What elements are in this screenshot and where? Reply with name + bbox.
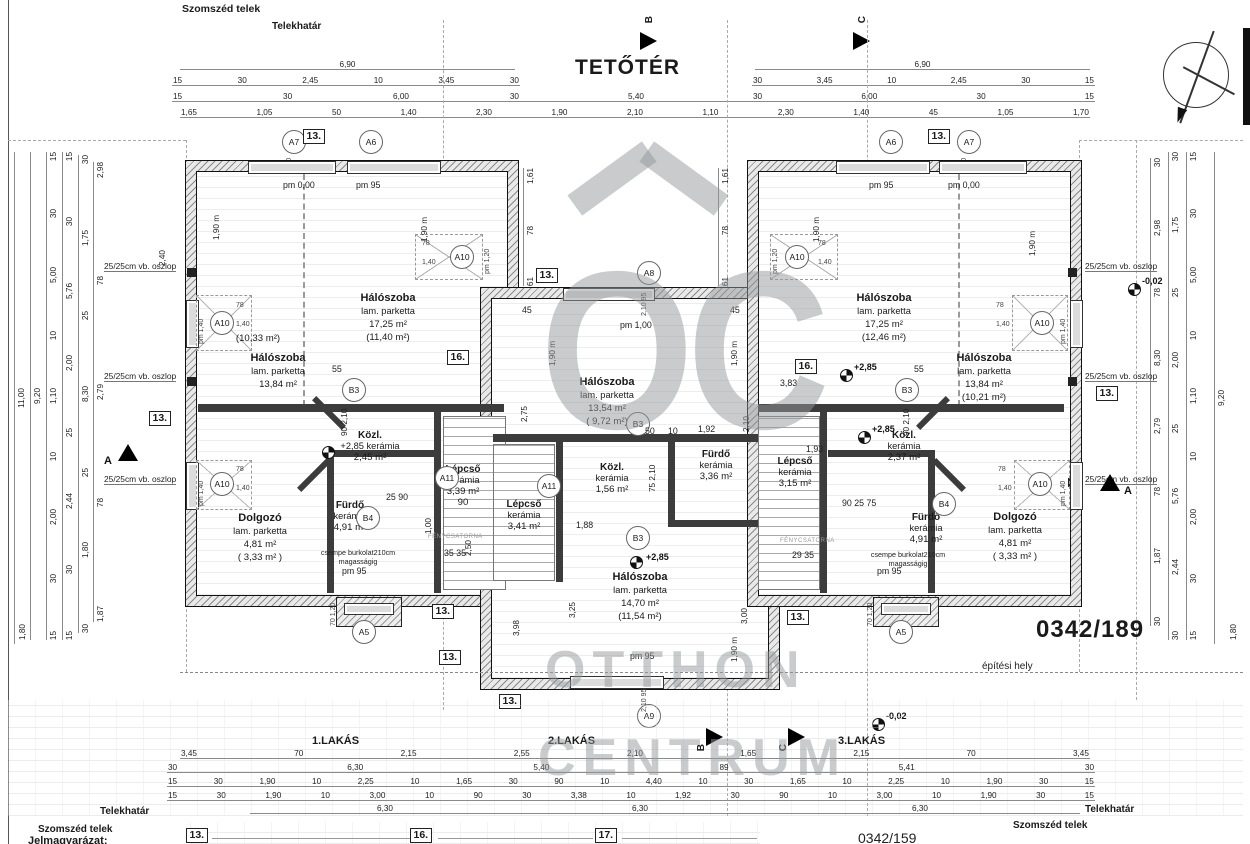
marker-b4: B4 <box>932 492 956 516</box>
plot-number-main: 0342/189 <box>1036 616 1144 644</box>
roof-window-size: 781,40 <box>422 240 436 266</box>
level-minus002: -0,02 <box>1142 276 1163 286</box>
marker-16: 16. <box>410 828 432 843</box>
marker-13: 13. <box>787 610 809 625</box>
dim-top-row2-right: 303,45102,453015 <box>752 74 1095 86</box>
plot-boundary-label-bottom-right: Telekhatár <box>1085 804 1134 815</box>
dim: 1,00 <box>424 498 433 534</box>
dim-left-5: 301,75258,30251,8030 <box>78 155 92 633</box>
right-edge-bar <box>1243 28 1250 125</box>
note-oszlop: 25/25cm vb. oszlop <box>104 474 176 485</box>
marker-13: 13. <box>1096 386 1118 401</box>
marker-a10: A10 <box>1028 472 1052 496</box>
marker-a5: A5 <box>352 620 376 644</box>
note-oszlop: 25/25cm vb. oszlop <box>104 371 176 382</box>
level-285: +2,85 <box>872 424 895 434</box>
marker-13: 13. <box>432 604 454 619</box>
room-l-halo2: Hálószoba lam. parketta 17,25 m² (11,40 … <box>348 292 428 344</box>
note-oszlop: 25/25cm vb. oszlop <box>104 261 176 272</box>
dim-top-row3-center: 5,40 <box>520 90 752 102</box>
dim-left-6: 2,98782,79781,87 <box>93 162 107 622</box>
level-285: +2,85 <box>646 552 669 562</box>
pm-95: pm 95 <box>877 566 901 576</box>
marker-line <box>212 838 410 839</box>
marker-17: 17. <box>595 828 617 843</box>
height-190: 1,90 m <box>1028 206 1037 256</box>
section-a-arrow-icon <box>1100 474 1120 491</box>
compass-arrowhead-icon <box>1173 107 1188 125</box>
height-190: 1,90 m <box>420 192 429 242</box>
neighbor-plot-label-bottom-left: Szomszéd telek <box>38 824 112 835</box>
marker-a11: A11 <box>537 474 561 498</box>
pillar <box>187 268 196 277</box>
dim-a5-pair: 70 1,20 <box>330 596 337 626</box>
marker-a10: A10 <box>450 245 474 269</box>
dim-bottom-row4: 15301,90103,001090303,38101,923090103,00… <box>167 789 1095 801</box>
dim-left-total: 11,00 <box>14 152 28 644</box>
dim: 3,98 <box>512 580 521 636</box>
level-285: +2,85 <box>854 362 877 372</box>
neighbor-plot-label-bottom-right: Szomszéd telek <box>1013 820 1087 831</box>
plot-number-lower: 0342/159 <box>858 830 916 844</box>
marker-line <box>438 838 593 839</box>
dim-top-row1-right: 6,90 <box>755 58 1090 70</box>
section-b-arrow-icon <box>640 32 657 50</box>
pm-140: pm 1,40 <box>198 300 205 344</box>
dim-right-total: 9,20 <box>1214 152 1228 644</box>
partition-wall <box>668 520 768 527</box>
level-symbol <box>858 431 871 444</box>
building-site-label: építési hely <box>982 661 1033 672</box>
dim-top-row1-left: 6,90 <box>180 58 515 70</box>
window <box>1070 300 1083 348</box>
room-r-halo1: Hálószoba lam. parketta 17,25 m² (12,46 … <box>844 292 924 344</box>
marker-13: 13. <box>439 650 461 665</box>
marker-13: 13. <box>149 411 171 426</box>
window <box>939 161 1027 174</box>
window <box>344 603 394 615</box>
neighbor-plot-label-top: Szomszéd telek <box>182 3 260 15</box>
watermark-otthon: OTTHON <box>545 640 807 700</box>
floor-plan-drawing: Szomszéd telek Telekhatár TETŐTÉR 6,90 6… <box>0 0 1250 844</box>
dim: 90 2,10 <box>902 390 911 436</box>
pm-000: pm 0,00 <box>283 180 315 190</box>
note-oszlop: 25/25cm vb. oszlop <box>1085 261 1157 272</box>
dim: 35 35 <box>444 548 466 558</box>
dim-top-row3-left: 15306,0030 <box>172 90 520 102</box>
marker-a10: A10 <box>1030 311 1054 335</box>
pm-140: pm 1,40 <box>198 462 205 506</box>
dim-top-row2-left: 15302,45103,4530 <box>172 74 520 86</box>
watermark-roof-icon <box>639 141 728 215</box>
dim-right-3: 15305,00101,10102,003015 <box>1186 152 1200 640</box>
marker-a6: A6 <box>879 130 903 154</box>
marker-16: 16. <box>447 350 469 365</box>
level-symbol <box>840 369 853 382</box>
setback-line <box>8 140 186 141</box>
dim-bottom-row5a: 6,30 <box>250 802 520 814</box>
marker-a10: A10 <box>210 472 234 496</box>
dim-bottom-row5b: 6,30 <box>520 802 760 814</box>
dim: 3,25 <box>568 566 577 618</box>
dim: 2,75 <box>520 376 529 422</box>
dim-top-row3-right: 306,003015 <box>752 90 1095 102</box>
pm-95: pm 95 <box>869 180 893 190</box>
dim-right-1: 302,98788,302,79781,8730 <box>1150 158 1164 626</box>
apartment-1-label: 1.LAKÁS <box>312 735 359 747</box>
dim: 90 2,10 <box>340 390 349 436</box>
marker-a7: A7 <box>957 130 981 154</box>
dim-180: 1,80 <box>18 600 27 640</box>
dim: 25 90 <box>386 492 408 502</box>
level-symbol <box>1128 283 1141 296</box>
note-oszlop: 25/25cm vb. oszlop <box>1085 371 1157 382</box>
dim-top-row4: 1,651,05501,402,301,902,101,102,301,4045… <box>180 106 1090 118</box>
marker-b3: B3 <box>626 526 650 550</box>
window <box>248 161 336 174</box>
section-a-arrow-icon <box>118 444 138 461</box>
pm-140: pm 1,40 <box>1060 462 1067 506</box>
dim-bottom-row5c: 6,30 <box>760 802 1080 814</box>
dim-45: 45 <box>522 305 532 315</box>
marker-13: 13. <box>186 828 208 843</box>
legend-title: Jelmagyarázat: <box>28 835 108 844</box>
pm-95: pm 95 <box>356 180 380 190</box>
dim: 55 <box>332 364 342 374</box>
room-r-halo2: Hálószoba lam. parketta 13,84 m² (10,21 … <box>944 352 1024 404</box>
dim-240: 2,40 <box>158 222 167 266</box>
room-c-halo2: Hálószoba lam. parketta 14,70 m² (11,54 … <box>600 571 680 623</box>
room-c-lepcso: Lépcső kerámia 3,41 m² <box>486 499 562 532</box>
section-b-label: B <box>644 16 655 23</box>
dim-courtyard-left: 1,617861 <box>523 168 537 286</box>
roof-window-size: 781,40 <box>998 466 1012 492</box>
dim-180: 1,80 <box>1229 600 1238 640</box>
dim-left-3: 15305,00101,10102,003015 <box>46 152 60 640</box>
partition-wall <box>198 404 504 412</box>
window <box>1070 462 1083 510</box>
pillar <box>1068 377 1077 386</box>
marker-a11: A11 <box>435 466 459 490</box>
dim: 90 25 75 <box>842 498 876 508</box>
dim-a5-pair: 70 1,20 <box>867 596 874 626</box>
room-l-halo1: Hálószoba lam. parketta 13,84 m² <box>238 352 318 391</box>
dim: 1,88 <box>576 520 593 530</box>
marker-13: 13. <box>928 129 950 144</box>
marker-a5: A5 <box>889 620 913 644</box>
window <box>347 161 441 174</box>
section-a-label: A <box>1124 485 1132 497</box>
pillar <box>187 377 196 386</box>
setback-line <box>1079 140 1243 141</box>
pm-95: pm 95 <box>342 566 366 576</box>
pm-120: pm 1,20 <box>484 238 491 274</box>
note-fenycsatorna: FÉNYCSATORNA <box>428 534 483 540</box>
dim: 29 35 <box>792 550 814 560</box>
window <box>836 161 930 174</box>
roof-window-size: 781,40 <box>996 302 1010 328</box>
note-oszlop: 25/25cm vb. oszlop <box>1085 474 1157 485</box>
dim: 55 <box>914 364 924 374</box>
marker-13: 13. <box>303 129 325 144</box>
level-symbol <box>322 446 335 459</box>
pillar <box>1068 268 1077 277</box>
section-a-label: A <box>104 455 112 467</box>
roof-window-size: 781,40 <box>236 302 250 328</box>
marker-line <box>622 838 757 839</box>
watermark-oc: OC <box>540 250 823 450</box>
dim-left-2: 9,20 <box>30 152 44 640</box>
plot-boundary-label-top: Telekhatár <box>272 21 321 32</box>
level-symbol <box>630 556 643 569</box>
watermark-roof-icon <box>567 141 656 215</box>
drawing-title: TETŐTÉR <box>575 56 680 80</box>
room-l-halo1-extra: (10,33 m²) <box>218 332 298 345</box>
room-r-furdo: Fürdő kerámia 4,91 m² <box>886 512 966 545</box>
dim: 3,00 <box>740 572 749 624</box>
watermark-centrum: CENTRUM <box>538 728 847 788</box>
dim-right-2: 301,75252,00255,762,4430 <box>1168 152 1182 640</box>
pm-000: pm 0,00 <box>948 180 980 190</box>
marker-a6: A6 <box>359 130 383 154</box>
note-fenycsatorna: FÉNYCSATORNA <box>780 538 835 544</box>
room-l-dolgozo: Dolgozó lam. parketta 4,81 m² ( 3,33 m² … <box>220 512 300 564</box>
plot-boundary-label-bottom-left: Telekhatár <box>100 806 149 817</box>
window <box>881 603 931 615</box>
pm-140: pm 1,40 <box>1060 300 1067 344</box>
marker-b4: B4 <box>356 506 380 530</box>
note-csempe: csempe burkolat210cm magasságig <box>318 548 398 566</box>
roof-window-size: 781,40 <box>236 466 250 492</box>
dim-left-4: 15305,762,00252,443015 <box>62 152 76 640</box>
height-190: 1,90 m <box>212 190 221 240</box>
room-r-dolgozo: Dolgozó lam. parketta 4,81 m² ( 3,33 m² … <box>975 511 1055 563</box>
